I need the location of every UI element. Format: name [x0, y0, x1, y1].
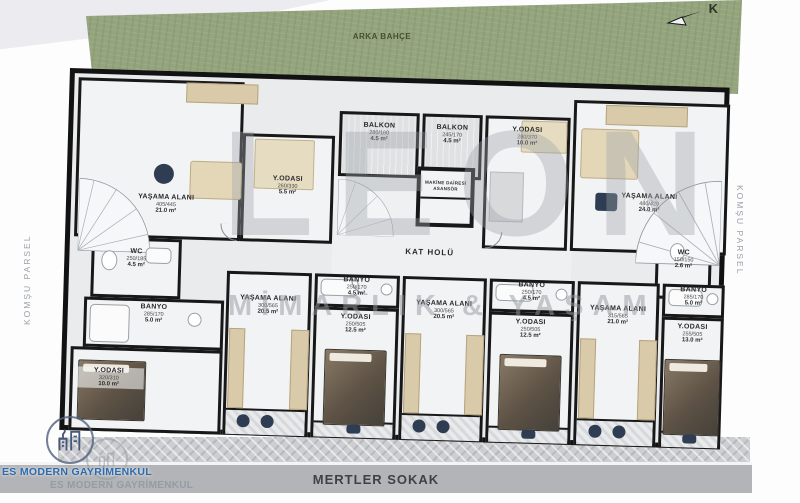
- pillow: [504, 358, 546, 367]
- back-garden-label: ARKA BAHÇE: [352, 32, 412, 42]
- label-bedroom-left: Y.ODASI 320/310 10.0 m²: [74, 366, 145, 389]
- label-bath-5: BANYO 250/170 4.5 m²: [491, 281, 572, 305]
- agency-name: ES MODERN GAYRİMENKUL: [2, 466, 152, 478]
- compass-north-letter: K: [709, 1, 718, 16]
- watermark-registered-icon: ®: [642, 192, 658, 218]
- label-wc-left: WC 250/185 4.5 m²: [106, 247, 167, 270]
- building-plan: YAŞAMA ALANI 405/445 21.0 m² Y.ODASI 260…: [59, 68, 729, 449]
- agency-name-shadow: ES MODERN GAYRİMENKUL: [50, 480, 193, 491]
- sofa-set: [580, 128, 639, 180]
- ac-unit: [682, 434, 696, 443]
- label-living-6: YAŞAMA ALANI 315/565 21.0 m²: [578, 304, 659, 328]
- stairs-left-icon: [78, 175, 152, 255]
- kitchen-counter: [227, 328, 245, 408]
- bed: [662, 359, 720, 437]
- compass-north-icon: K: [666, 3, 718, 33]
- label-bedroom-7: Y.ODASI 255/505 13.0 m²: [655, 322, 730, 345]
- compass-arrow-icon: [666, 3, 706, 29]
- kitchen-counter: [186, 82, 259, 104]
- bed: [323, 349, 387, 427]
- left-parcel-label: KOMŞU PARSEL: [22, 225, 32, 325]
- label-wc-right: WC 150/150 2.6 m²: [653, 248, 714, 271]
- label-bedroom-5: Y.ODASI 250/505 12.5 m²: [490, 318, 571, 342]
- rug: [489, 172, 524, 223]
- label-bedroom-3: Y.ODASI 250/505 12.5 m²: [315, 312, 396, 336]
- right-parcel-label: KOMŞU PARSEL: [735, 185, 745, 285]
- ac-unit: [521, 430, 535, 439]
- buildings-icon: [56, 426, 84, 454]
- wardrobe: [464, 335, 484, 415]
- label-elevator: MAKİNE DAİRESİ ASANSÖR: [420, 179, 472, 192]
- kitchen-counter: [403, 333, 421, 413]
- label-bath-left: BANYO 285/170 5.0 m²: [113, 302, 194, 326]
- label-bedroom-top: Y.ODASI 280/370 10.0 m²: [487, 125, 568, 149]
- bed: [497, 354, 561, 432]
- label-balcony-2: BALKON 245/170 4.5 m²: [423, 124, 482, 147]
- stairs-hall-icon: [334, 179, 398, 237]
- label-bath-7: BANYO 285/170 5.0 m²: [656, 286, 731, 309]
- kitchen-counter: [578, 338, 596, 418]
- street-name: MERTLER SOKAK: [313, 472, 439, 487]
- floor-plan-page: ARKA BAHÇE K KOMŞU PARSEL KOMŞU PARSEL M…: [0, 0, 800, 503]
- pillow: [329, 353, 371, 362]
- label-living-top-left: YAŞAMA ALANI 405/445 21.0 m²: [126, 193, 207, 217]
- label-bedroom-top-left: Y.ODASI 260/330 5.5 m²: [247, 174, 328, 198]
- label-living-4: YAŞAMA ALANI 300/565 20.5 m²: [404, 299, 485, 323]
- label-living-2: YAŞAMA ALANI 300/565 20.5 m²: [228, 294, 309, 318]
- wardrobe: [637, 340, 657, 420]
- label-bath-3: BANYO 250/170 4.5 m²: [316, 275, 397, 299]
- room-elevator-shaft: [415, 166, 475, 228]
- ac-unit: [346, 424, 360, 433]
- elevator-divider: [420, 196, 470, 199]
- agency-logo: ES MODERN GAYRİMENKUL ES MODERN GAYRİMEN…: [0, 408, 200, 500]
- agency-logo-circle: [46, 416, 94, 464]
- wardrobe: [289, 330, 309, 410]
- kitchen-counter: [606, 105, 689, 127]
- pillow: [669, 363, 707, 372]
- label-balcony-1: BALKON 280/160 4.5 m²: [340, 121, 419, 145]
